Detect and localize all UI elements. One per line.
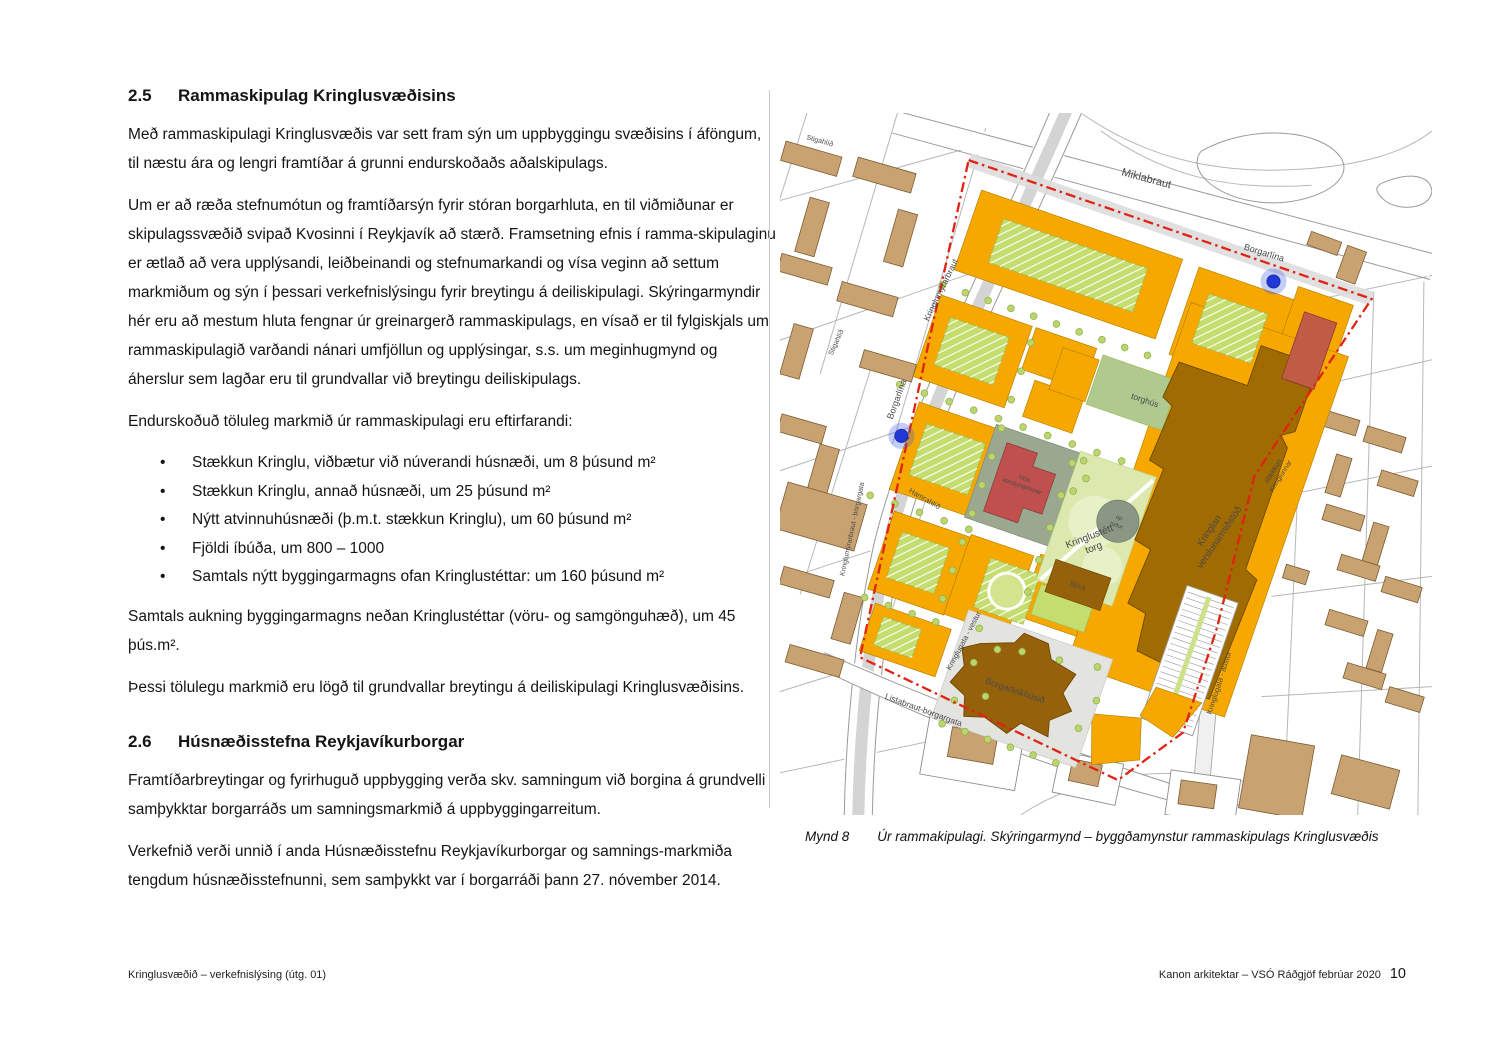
paragraph: Þessi tölulegu markmið eru lögð til grun… [128,673,776,702]
footer-left: Kringlusvæðið – verkefnislýsing (útg. 01… [128,969,326,981]
paragraph: Framtíðarbreytingar og fyrirhuguð uppbyg… [128,766,776,824]
borgarlina-station-west [888,423,914,449]
figure-map: torghús Hús verslunarinnar op niður Krin… [780,113,1432,846]
section-number: 2.6 [128,730,178,754]
paragraph: Verkefnið verði unnið í anda Húsnæðisste… [128,837,776,895]
section-number: 2.5 [128,84,178,108]
page-footer: Kringlusvæðið – verkefnislýsing (útg. 01… [128,966,1406,982]
list-item: Samtals nýtt byggingarmagns ofan Kringlu… [192,563,776,592]
urban-plan-map: torghús Hús verslunarinnar op niður Krin… [780,113,1432,815]
list-item: Stækkun Kringlu, annað húsnæði, um 25 þú… [192,478,776,507]
section-title: Húsnæðisstefna Reykjavíkurborgar [178,730,464,754]
paragraph: Um er að ræða stefnumótun og framtíðarsý… [128,191,776,394]
paragraph: Endurskoðuð töluleg markmið úr rammaskip… [128,407,776,436]
borgarlina-station-north [1260,268,1286,294]
figure-caption-text: Úr rammakipulagi. Skýringarmynd – byggða… [877,828,1378,846]
footer-right: Kanon arkitektar – VSÓ Ráðgjöf febrúar 2… [1159,969,1381,981]
goal-bullet-list: Stækkun Kringlu, viðbætur við núverandi … [128,449,776,592]
figure-caption-label: Mynd 8 [805,828,849,846]
list-item: Stækkun Kringlu, viðbætur við núverandi … [192,449,776,478]
page-number: 10 [1390,966,1406,982]
section-2-6-heading: 2.6 Húsnæðisstefna Reykjavíkurborgar [128,730,776,754]
list-item: Nýtt atvinnuhúsnæði (þ.m.t. stækkun Krin… [192,506,776,535]
document-page: 2.5 Rammaskipulag Kringlusvæðisins Með r… [0,0,1500,1061]
section-title: Rammaskipulag Kringlusvæðisins [178,84,456,108]
map-label-stigahlid-top: Stigahlíð [806,133,834,148]
column-rule [769,90,770,808]
list-item: Fjöldi íbúða, um 800 – 1000 [192,535,776,564]
paragraph: Með rammaskipulagi Kringlusvæðis var set… [128,120,776,178]
figure-caption: Mynd 8 Úr rammakipulagi. Skýringarmynd –… [780,828,1432,846]
section-2-5-heading: 2.5 Rammaskipulag Kringlusvæðisins [128,84,776,108]
paragraph: Samtals aukning byggingarmagns neðan Kri… [128,602,776,660]
text-column: 2.5 Rammaskipulag Kringlusvæðisins Með r… [128,84,776,908]
footer-right-wrap: Kanon arkitektar – VSÓ Ráðgjöf febrúar 2… [1159,966,1406,982]
